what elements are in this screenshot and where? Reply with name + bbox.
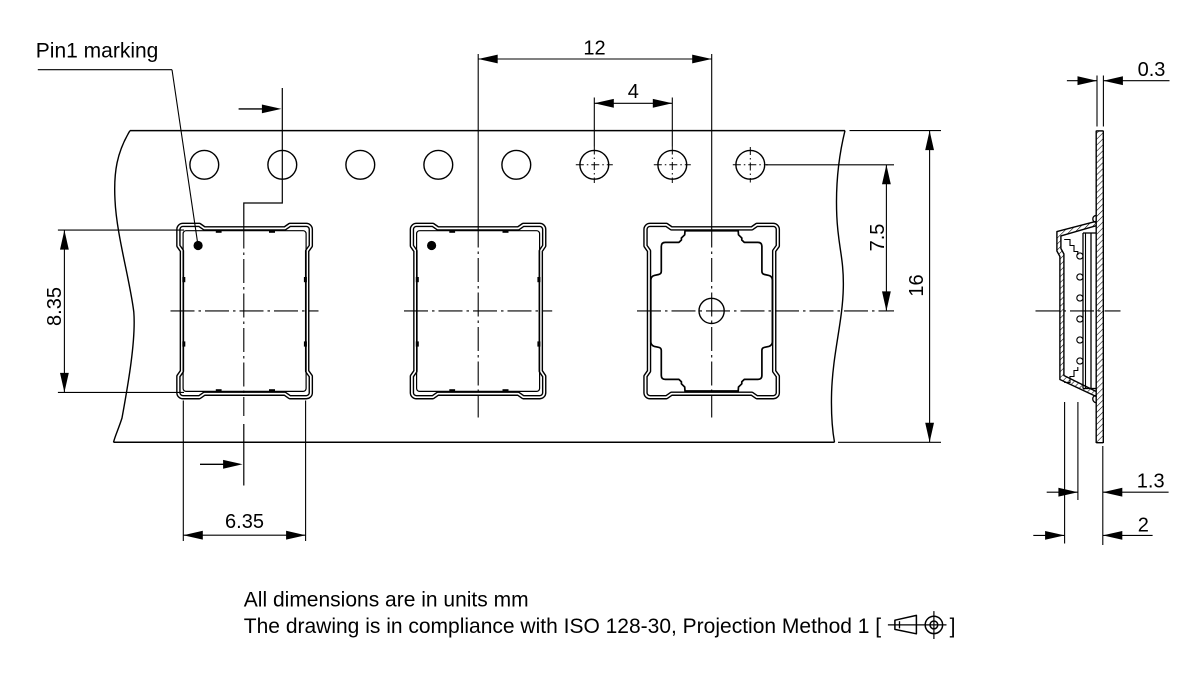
svg-text:]: ] — [950, 615, 956, 638]
svg-text:8.35: 8.35 — [44, 287, 66, 326]
svg-text:7.5: 7.5 — [867, 224, 889, 252]
svg-text:12: 12 — [583, 38, 605, 60]
svg-text:All dimensions are in units mm: All dimensions are in units mm — [244, 588, 529, 611]
svg-text:16: 16 — [906, 274, 928, 296]
svg-text:1.3: 1.3 — [1137, 470, 1165, 492]
svg-text:6.35: 6.35 — [225, 511, 264, 533]
svg-text:Pin1 marking: Pin1 marking — [36, 40, 159, 63]
svg-text:The drawing is in compliance w: The drawing is in compliance with ISO 12… — [244, 615, 881, 638]
svg-text:4: 4 — [628, 81, 639, 103]
svg-text:0.3: 0.3 — [1138, 59, 1166, 81]
svg-text:2: 2 — [1138, 515, 1149, 537]
